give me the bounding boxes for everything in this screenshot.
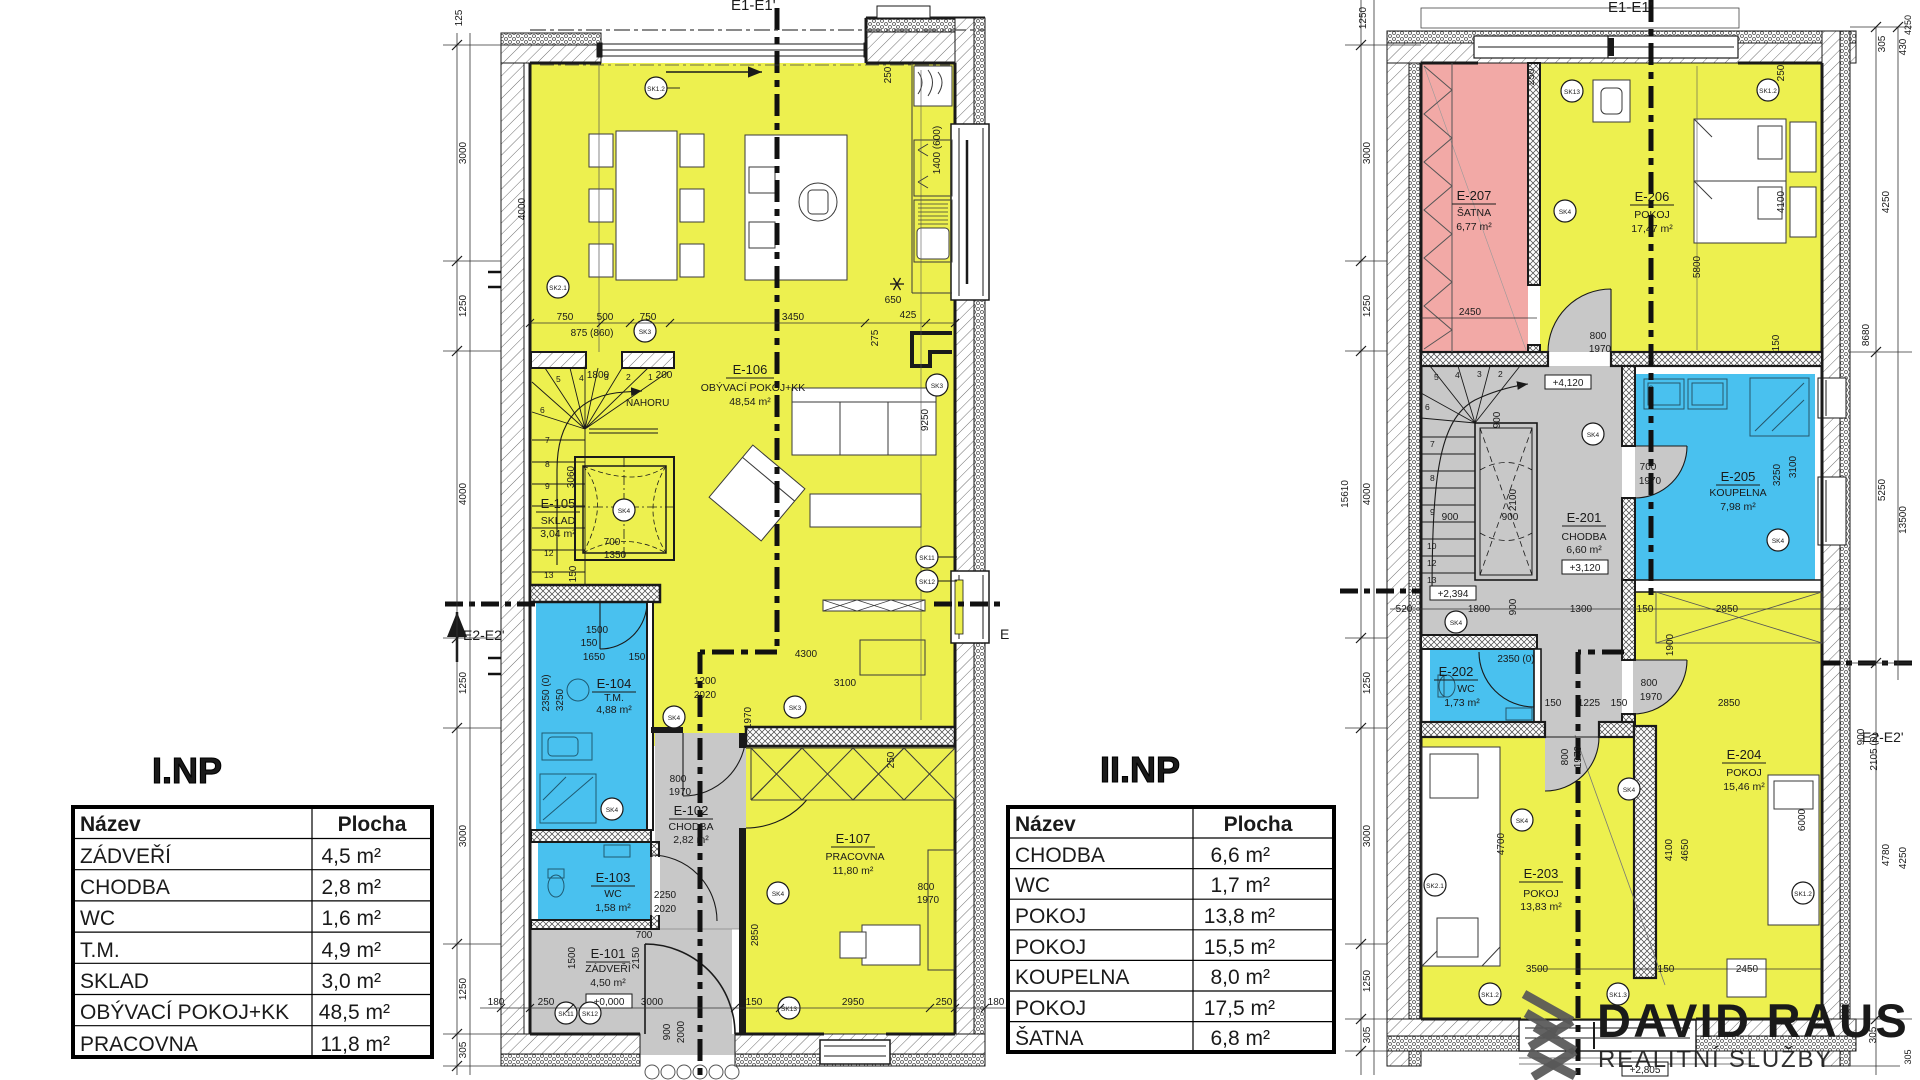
svg-text:150: 150: [1545, 698, 1562, 709]
svg-text:900: 900: [1856, 728, 1867, 745]
svg-text:Plocha: Plocha: [1224, 813, 1293, 836]
svg-text:150: 150: [746, 997, 763, 1008]
svg-text:SK2.1: SK2.1: [1426, 883, 1444, 890]
svg-text:4700: 4700: [1496, 832, 1507, 855]
svg-text:SK4: SK4: [1772, 538, 1785, 545]
svg-text:3000: 3000: [641, 997, 664, 1008]
svg-text:800: 800: [670, 774, 687, 785]
svg-text:3: 3: [1477, 369, 1482, 379]
svg-text:3060: 3060: [566, 465, 577, 488]
svg-text:POKOJ: POKOJ: [1015, 936, 1086, 959]
svg-text:1800: 1800: [1468, 604, 1491, 615]
svg-text:1970: 1970: [1573, 745, 1584, 768]
svg-text:4780: 4780: [1881, 843, 1892, 866]
svg-text:15,5 m²: 15,5 m²: [1204, 936, 1275, 959]
svg-text:9: 9: [1430, 507, 1435, 517]
svg-text:3000: 3000: [1362, 824, 1373, 847]
svg-text:E-203: E-203: [1524, 866, 1559, 881]
svg-text:13: 13: [1427, 575, 1437, 585]
svg-text:3450: 3450: [782, 312, 805, 323]
svg-text:SK4: SK4: [1516, 818, 1529, 825]
svg-text:500: 500: [597, 312, 614, 323]
svg-text:48,54 m²: 48,54 m²: [729, 396, 771, 408]
svg-text:WC: WC: [1457, 683, 1475, 695]
svg-text:CHODBA: CHODBA: [669, 821, 714, 833]
svg-text:2,8 m²: 2,8 m²: [321, 876, 381, 899]
svg-text:1250: 1250: [458, 977, 469, 1000]
svg-text:180: 180: [988, 997, 1005, 1008]
svg-text:4250: 4250: [1881, 190, 1892, 213]
svg-text:3250: 3250: [1772, 463, 1783, 486]
svg-text:OBÝVACÍ POKOJ+KK: OBÝVACÍ POKOJ+KK: [701, 381, 806, 394]
svg-text:15,46 m²: 15,46 m²: [1723, 781, 1765, 793]
svg-text:8: 8: [545, 459, 550, 469]
svg-text:4,50 m²: 4,50 m²: [590, 977, 626, 989]
svg-text:700: 700: [1640, 462, 1657, 473]
svg-text:875 (860): 875 (860): [571, 328, 614, 339]
svg-text:13500: 13500: [1898, 506, 1909, 534]
svg-text:SK4: SK4: [1587, 432, 1600, 439]
svg-text:E-201: E-201: [1567, 510, 1602, 525]
svg-text:7: 7: [1430, 439, 1435, 449]
svg-text:1650: 1650: [583, 652, 606, 663]
svg-text:750: 750: [557, 312, 574, 323]
svg-text:1400 (600): 1400 (600): [932, 126, 943, 174]
svg-text:520: 520: [1396, 604, 1413, 615]
svg-text:900: 900: [1502, 512, 1519, 523]
svg-text:305: 305: [1877, 35, 1888, 52]
svg-text:7: 7: [545, 435, 550, 445]
svg-text:2850: 2850: [1716, 604, 1739, 615]
svg-text:1970: 1970: [669, 787, 692, 798]
svg-text:12: 12: [544, 548, 554, 558]
svg-text:Název: Název: [80, 813, 141, 836]
svg-text:E-207: E-207: [1457, 188, 1492, 203]
svg-text:2350 (0): 2350 (0): [541, 674, 552, 711]
svg-text:SK2.1: SK2.1: [549, 285, 567, 292]
svg-text:E: E: [1000, 626, 1009, 642]
svg-text:POKOJ: POKOJ: [1726, 767, 1762, 779]
svg-text:3,0 m²: 3,0 m²: [321, 970, 381, 993]
svg-text:WC: WC: [1015, 874, 1050, 897]
svg-text:SK4: SK4: [1623, 787, 1636, 794]
svg-text:305: 305: [1362, 1026, 1373, 1043]
svg-text:Název: Název: [1015, 813, 1076, 836]
svg-text:2150: 2150: [631, 946, 642, 969]
svg-text:SK13: SK13: [781, 1006, 797, 1013]
svg-text:E-105: E-105: [541, 496, 576, 511]
svg-text:1250: 1250: [1358, 6, 1369, 29]
svg-text:800: 800: [1641, 678, 1658, 689]
svg-text:6: 6: [1425, 402, 1430, 412]
svg-text:SK4: SK4: [668, 715, 681, 722]
svg-text:E-202: E-202: [1439, 664, 1474, 679]
svg-text:6,77 m²: 6,77 m²: [1456, 221, 1492, 233]
svg-text:REALITNÍ SLUŽBY: REALITNÍ SLUŽBY: [1598, 1046, 1833, 1073]
svg-text:CHODBA: CHODBA: [1015, 844, 1105, 867]
svg-text:13,83 m²: 13,83 m²: [1520, 901, 1562, 913]
svg-text:E-104: E-104: [597, 676, 632, 691]
svg-text:+3,120: +3,120: [1570, 563, 1601, 574]
svg-text:SK4: SK4: [618, 508, 631, 515]
svg-text:250: 250: [886, 751, 897, 768]
svg-text:305: 305: [1903, 1049, 1913, 1064]
svg-text:15610: 15610: [1340, 480, 1351, 508]
svg-text:3000: 3000: [458, 141, 469, 164]
svg-text:E-206: E-206: [1635, 189, 1670, 204]
svg-text:700: 700: [636, 930, 653, 941]
svg-text:E-106: E-106: [733, 362, 768, 377]
svg-text:POKOJ: POKOJ: [1015, 905, 1086, 928]
svg-text:4100: 4100: [1776, 190, 1787, 213]
svg-text:6: 6: [540, 405, 545, 415]
svg-text:250: 250: [1526, 68, 1537, 85]
svg-text:SK4: SK4: [1559, 209, 1572, 216]
svg-text:3250: 3250: [555, 688, 566, 711]
svg-text:ŠATNA: ŠATNA: [1015, 1027, 1083, 1050]
svg-text:900: 900: [1492, 411, 1503, 428]
svg-text:4250: 4250: [1903, 15, 1913, 35]
svg-text:2350 (0): 2350 (0): [1497, 654, 1534, 665]
svg-text:KOUPELNA: KOUPELNA: [1015, 966, 1129, 989]
svg-text:2100: 2100: [1508, 488, 1519, 511]
svg-text:4,5 m²: 4,5 m²: [321, 845, 381, 868]
svg-text:KOUPELNA: KOUPELNA: [1709, 487, 1766, 499]
svg-text:150: 150: [1611, 698, 1628, 709]
svg-text:1: 1: [648, 372, 653, 382]
svg-text:2020: 2020: [694, 690, 717, 701]
svg-text:1250: 1250: [1362, 671, 1373, 694]
svg-text:305: 305: [458, 1041, 469, 1058]
svg-text:11,80 m²: 11,80 m²: [833, 865, 874, 877]
svg-text:13: 13: [544, 570, 554, 580]
svg-text:T.M.: T.M.: [80, 939, 120, 962]
svg-text:2105 (0): 2105 (0): [1869, 733, 1880, 770]
svg-text:6,60 m²: 6,60 m²: [1566, 544, 1602, 556]
svg-text:1970: 1970: [917, 895, 940, 906]
svg-text:750: 750: [640, 312, 657, 323]
svg-text:DAVID RAUS: DAVID RAUS: [1597, 994, 1909, 1047]
svg-text:SKLAD: SKLAD: [541, 515, 576, 527]
svg-text:4300: 4300: [795, 649, 818, 660]
svg-text:T.M.: T.M.: [604, 692, 624, 704]
svg-text:2: 2: [626, 372, 631, 382]
svg-text:SK4: SK4: [1450, 620, 1463, 627]
svg-text:SKLAD: SKLAD: [80, 970, 149, 993]
svg-text:900: 900: [1508, 598, 1519, 615]
svg-text:+2,394: +2,394: [1438, 589, 1469, 600]
svg-text:POKOJ: POKOJ: [1523, 888, 1559, 900]
svg-text:SK12: SK12: [919, 579, 935, 586]
svg-text:6,6 m²: 6,6 m²: [1210, 844, 1270, 867]
svg-text:PRACOVNA: PRACOVNA: [826, 851, 885, 863]
svg-text:OBÝVACÍ POKOJ+KK: OBÝVACÍ POKOJ+KK: [80, 1001, 289, 1024]
svg-text:E-102: E-102: [674, 803, 709, 818]
svg-text:+4,120: +4,120: [1553, 378, 1584, 389]
svg-text:I.NP: I.NP: [152, 750, 222, 791]
svg-text:2020: 2020: [654, 904, 677, 915]
svg-text:1970: 1970: [1589, 344, 1612, 355]
svg-text:200: 200: [656, 370, 673, 381]
svg-text:1970: 1970: [1639, 476, 1662, 487]
svg-text:1500: 1500: [567, 946, 578, 969]
svg-text:430: 430: [1898, 38, 1909, 55]
svg-text:4100: 4100: [1664, 838, 1675, 861]
svg-text:1350: 1350: [604, 550, 627, 561]
svg-text:SK3: SK3: [931, 383, 944, 390]
svg-text:2450: 2450: [1459, 307, 1482, 318]
svg-text:E-101: E-101: [591, 946, 626, 961]
svg-text:ŠATNA: ŠATNA: [1457, 206, 1491, 219]
svg-text:1800: 1800: [587, 370, 610, 381]
svg-text:4: 4: [579, 373, 584, 383]
svg-text:10: 10: [1427, 541, 1437, 551]
svg-text:E-205: E-205: [1721, 469, 1756, 484]
svg-text:SK1.2: SK1.2: [1481, 992, 1499, 999]
svg-text:1250: 1250: [1362, 294, 1373, 317]
svg-text:2250: 2250: [654, 890, 677, 901]
svg-text:CHODBA: CHODBA: [1562, 531, 1607, 543]
svg-text:E-103: E-103: [596, 870, 631, 885]
svg-text:NAHORU: NAHORU: [626, 398, 669, 409]
svg-text:800: 800: [1590, 331, 1607, 342]
svg-text:1200: 1200: [694, 676, 717, 687]
svg-text:SK11: SK11: [919, 555, 935, 562]
svg-text:5: 5: [1434, 372, 1439, 382]
svg-text:5: 5: [556, 374, 561, 384]
svg-text:11,8 m²: 11,8 m²: [320, 1033, 390, 1056]
svg-text:8: 8: [1430, 473, 1435, 483]
svg-text:II.NP: II.NP: [1100, 749, 1180, 790]
svg-text:8,0 m²: 8,0 m²: [1210, 966, 1270, 989]
svg-text:8680: 8680: [1861, 323, 1872, 346]
svg-text:E1-E1': E1-E1': [731, 0, 776, 14]
svg-text:E-107: E-107: [836, 831, 871, 846]
svg-text:4250: 4250: [1898, 846, 1909, 869]
svg-text:800: 800: [1560, 748, 1571, 765]
svg-text:150: 150: [1637, 604, 1654, 615]
svg-text:1250: 1250: [1362, 969, 1373, 992]
svg-text:3100: 3100: [834, 678, 857, 689]
svg-text:POKOJ: POKOJ: [1634, 209, 1670, 221]
svg-text:2000: 2000: [676, 1020, 687, 1043]
svg-text:2: 2: [1498, 369, 1503, 379]
svg-text:5800: 5800: [1692, 255, 1703, 278]
svg-text:6000: 6000: [1797, 808, 1808, 831]
svg-text:800: 800: [918, 882, 935, 893]
svg-text:SK4: SK4: [606, 807, 619, 814]
svg-text:150: 150: [568, 565, 579, 582]
svg-text:SK12: SK12: [582, 1011, 598, 1018]
svg-text:2850: 2850: [1718, 698, 1741, 709]
svg-text:SK3: SK3: [639, 329, 652, 336]
svg-text:1,6 m²: 1,6 m²: [321, 907, 381, 930]
svg-text:SK4: SK4: [772, 891, 785, 898]
svg-text:5250: 5250: [1877, 478, 1888, 501]
svg-text:4000: 4000: [517, 197, 528, 220]
svg-text:E1-E1': E1-E1': [1608, 0, 1653, 16]
svg-text:E-204: E-204: [1727, 747, 1762, 762]
svg-text:900: 900: [1442, 512, 1459, 523]
svg-text:150: 150: [1771, 334, 1782, 351]
svg-text:3,04 m²: 3,04 m²: [540, 528, 576, 540]
svg-text:17,5 m²: 17,5 m²: [1204, 997, 1275, 1020]
svg-text:SK3: SK3: [789, 705, 802, 712]
svg-text:3000: 3000: [458, 824, 469, 847]
svg-text:9: 9: [545, 481, 550, 491]
svg-text:3100: 3100: [1788, 455, 1799, 478]
svg-text:POKOJ: POKOJ: [1015, 997, 1086, 1020]
svg-text:150: 150: [581, 638, 598, 649]
svg-text:SK1.2: SK1.2: [1794, 891, 1812, 898]
svg-text:1300: 1300: [1570, 604, 1593, 615]
svg-text:125: 125: [454, 9, 465, 26]
svg-text:1970: 1970: [743, 706, 754, 729]
svg-text:2450: 2450: [1736, 964, 1759, 975]
svg-text:4000: 4000: [1362, 482, 1373, 505]
svg-text:4,88 m²: 4,88 m²: [596, 704, 632, 716]
svg-text:9250: 9250: [920, 408, 931, 431]
svg-text:WC: WC: [80, 907, 115, 930]
svg-text:1,7 m²: 1,7 m²: [1210, 874, 1270, 897]
svg-text:4: 4: [1455, 370, 1460, 380]
svg-text:Plocha: Plocha: [338, 813, 407, 836]
svg-text:4000: 4000: [458, 482, 469, 505]
svg-text:48,5 m²: 48,5 m²: [319, 1001, 390, 1024]
svg-text:ZÁDVEŘÍ: ZÁDVEŘÍ: [585, 962, 631, 975]
svg-text:250: 250: [1776, 64, 1787, 81]
svg-text:CHODBA: CHODBA: [80, 876, 170, 899]
svg-text:WC: WC: [604, 888, 622, 900]
svg-text:250: 250: [936, 997, 953, 1008]
svg-text:SK13: SK13: [1564, 89, 1580, 96]
svg-text:SK1.2: SK1.2: [647, 86, 665, 93]
svg-text:13,8 m²: 13,8 m²: [1204, 905, 1275, 928]
svg-text:150: 150: [1658, 964, 1675, 975]
svg-text:700: 700: [604, 537, 621, 548]
svg-text:3000: 3000: [1362, 141, 1373, 164]
svg-text:250: 250: [883, 66, 894, 83]
svg-text:425: 425: [900, 310, 917, 321]
svg-text:12: 12: [1427, 558, 1437, 568]
svg-text:1250: 1250: [458, 294, 469, 317]
svg-text:900: 900: [662, 1023, 673, 1040]
svg-text:E2-E2': E2-E2': [463, 627, 505, 643]
svg-text:1225: 1225: [1578, 698, 1601, 709]
svg-text:6,8 m²: 6,8 m²: [1210, 1027, 1270, 1050]
svg-text:1250: 1250: [458, 671, 469, 694]
svg-text:250: 250: [538, 997, 555, 1008]
svg-text:275: 275: [870, 329, 881, 346]
svg-text:1900: 1900: [1665, 633, 1676, 656]
svg-text:1,73 m²: 1,73 m²: [1444, 697, 1480, 709]
svg-text:650: 650: [885, 295, 902, 306]
svg-text:4,9 m²: 4,9 m²: [321, 939, 381, 962]
svg-text:2950: 2950: [842, 997, 865, 1008]
svg-text:7,98 m²: 7,98 m²: [1720, 501, 1756, 513]
svg-text:2,82 m²: 2,82 m²: [673, 834, 709, 846]
svg-text:17,47 m²: 17,47 m²: [1631, 223, 1673, 235]
svg-text:1970: 1970: [1640, 692, 1663, 703]
svg-text:4650: 4650: [1680, 838, 1691, 861]
svg-text:SK1.2: SK1.2: [1759, 88, 1777, 95]
svg-text:PRACOVNA: PRACOVNA: [80, 1033, 198, 1056]
svg-text:150: 150: [629, 652, 646, 663]
svg-text:1500: 1500: [586, 625, 609, 636]
svg-text:3500: 3500: [1526, 964, 1549, 975]
svg-text:2850: 2850: [750, 923, 761, 946]
svg-text:ZÁDVEŘÍ: ZÁDVEŘÍ: [80, 845, 171, 868]
svg-text:1,58 m²: 1,58 m²: [595, 902, 631, 914]
